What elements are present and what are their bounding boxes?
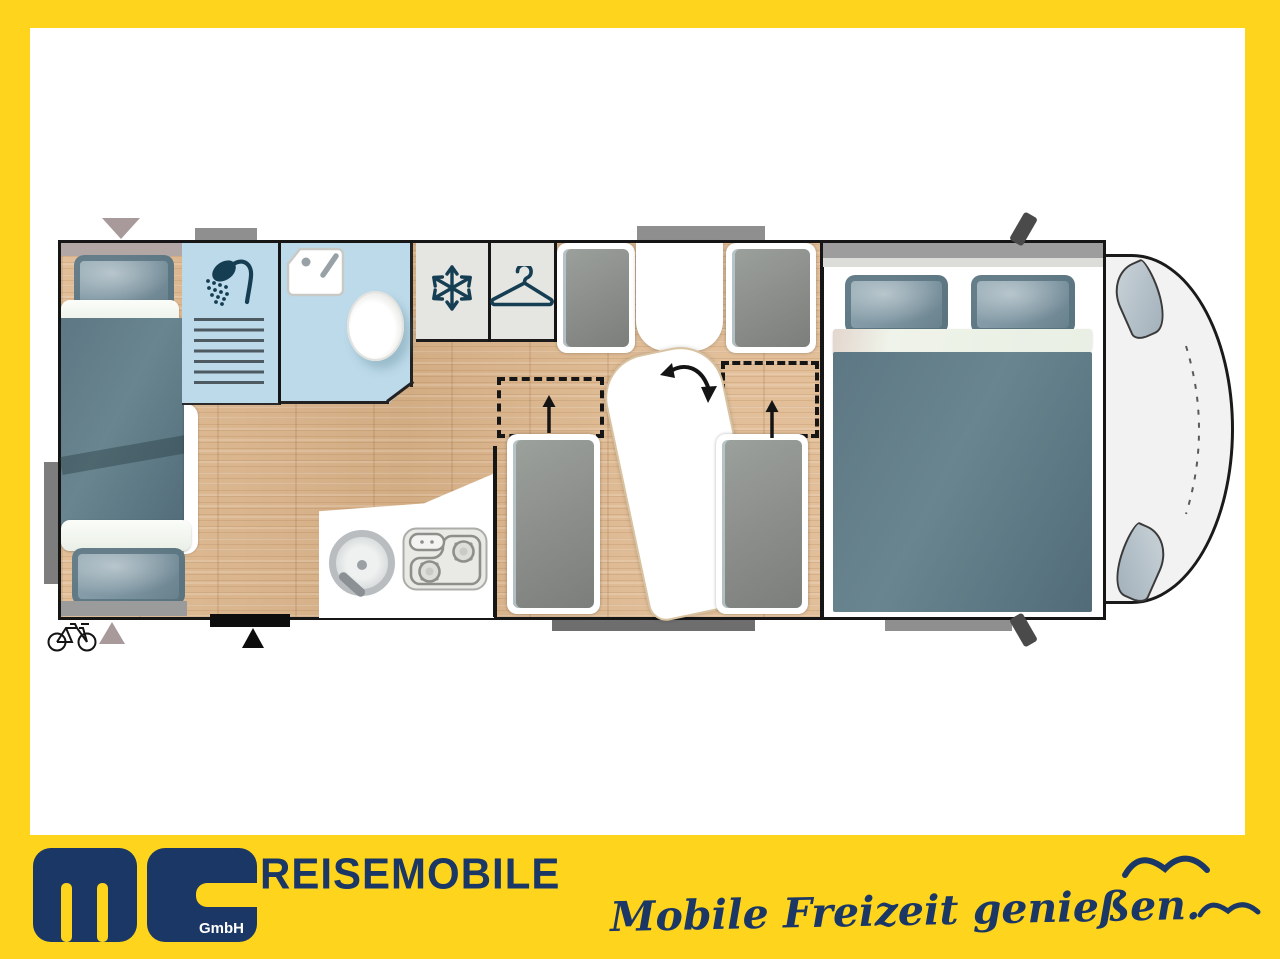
footer-banner: GmbH REISEMOBILE Mobile Freizeit genieße… <box>0 835 1280 959</box>
slogan-text: Mobile Freizeit genießen. <box>610 881 1201 941</box>
dinette-seat-front-left <box>507 434 600 614</box>
frame-left <box>0 0 30 959</box>
rotation-arrow-icon <box>656 360 722 414</box>
washroom-wall-right <box>410 243 413 387</box>
wordmark-text: REISEMOBILE <box>260 849 560 899</box>
rear-bed-foot-band <box>61 601 187 616</box>
up-arrow-icon <box>764 398 780 440</box>
dinette-seat-rear-left <box>557 243 635 353</box>
frame-right <box>1245 0 1280 959</box>
frame-top <box>0 0 1280 28</box>
bed-blanket <box>833 352 1092 612</box>
shower-icon <box>196 250 258 312</box>
rear-bed-pillow-bottom <box>72 548 185 605</box>
door-triangle-icon <box>242 628 264 648</box>
dinette-seat-front-right <box>716 434 808 614</box>
bed-pillow-right <box>971 275 1075 334</box>
stove-icon <box>402 527 488 591</box>
bedroom-wall <box>820 243 824 617</box>
entry-door-sill <box>210 614 290 627</box>
washroom-wall-bottom <box>281 401 389 404</box>
gmbh-label: GmbH <box>199 920 244 937</box>
dinette-table-stowed <box>636 243 723 351</box>
dinette-seat-rear-right <box>726 243 816 353</box>
bed-headboard-shelf <box>823 258 1103 267</box>
snowflake-icon <box>428 264 476 312</box>
bicycle-icon <box>46 617 98 653</box>
dealer-floorplan-image: GmbH REISEMOBILE Mobile Freizeit genieße… <box>0 0 1280 959</box>
marker-triangle-bottom <box>99 622 125 644</box>
sink-faucet-knob <box>357 560 367 570</box>
washbasin-icon <box>286 247 346 297</box>
cab-windshield-line <box>1168 340 1218 520</box>
seagull-icon-small <box>1196 895 1262 925</box>
marker-triangle-top <box>102 218 140 239</box>
toilet-shape <box>347 291 404 361</box>
ms-logo: GmbH <box>33 848 267 942</box>
up-arrow-icon <box>541 393 557 435</box>
divider-kitchen-seat <box>493 446 497 617</box>
rear-bed-ledge-bottom <box>61 520 191 551</box>
shower-grate-lines <box>194 318 264 388</box>
bed-headboard <box>823 243 1103 258</box>
seagull-icon-large <box>1120 849 1212 885</box>
rear-bed-blanket <box>61 318 189 530</box>
hanger-icon <box>490 266 554 312</box>
bed-pillow-left <box>845 275 948 334</box>
